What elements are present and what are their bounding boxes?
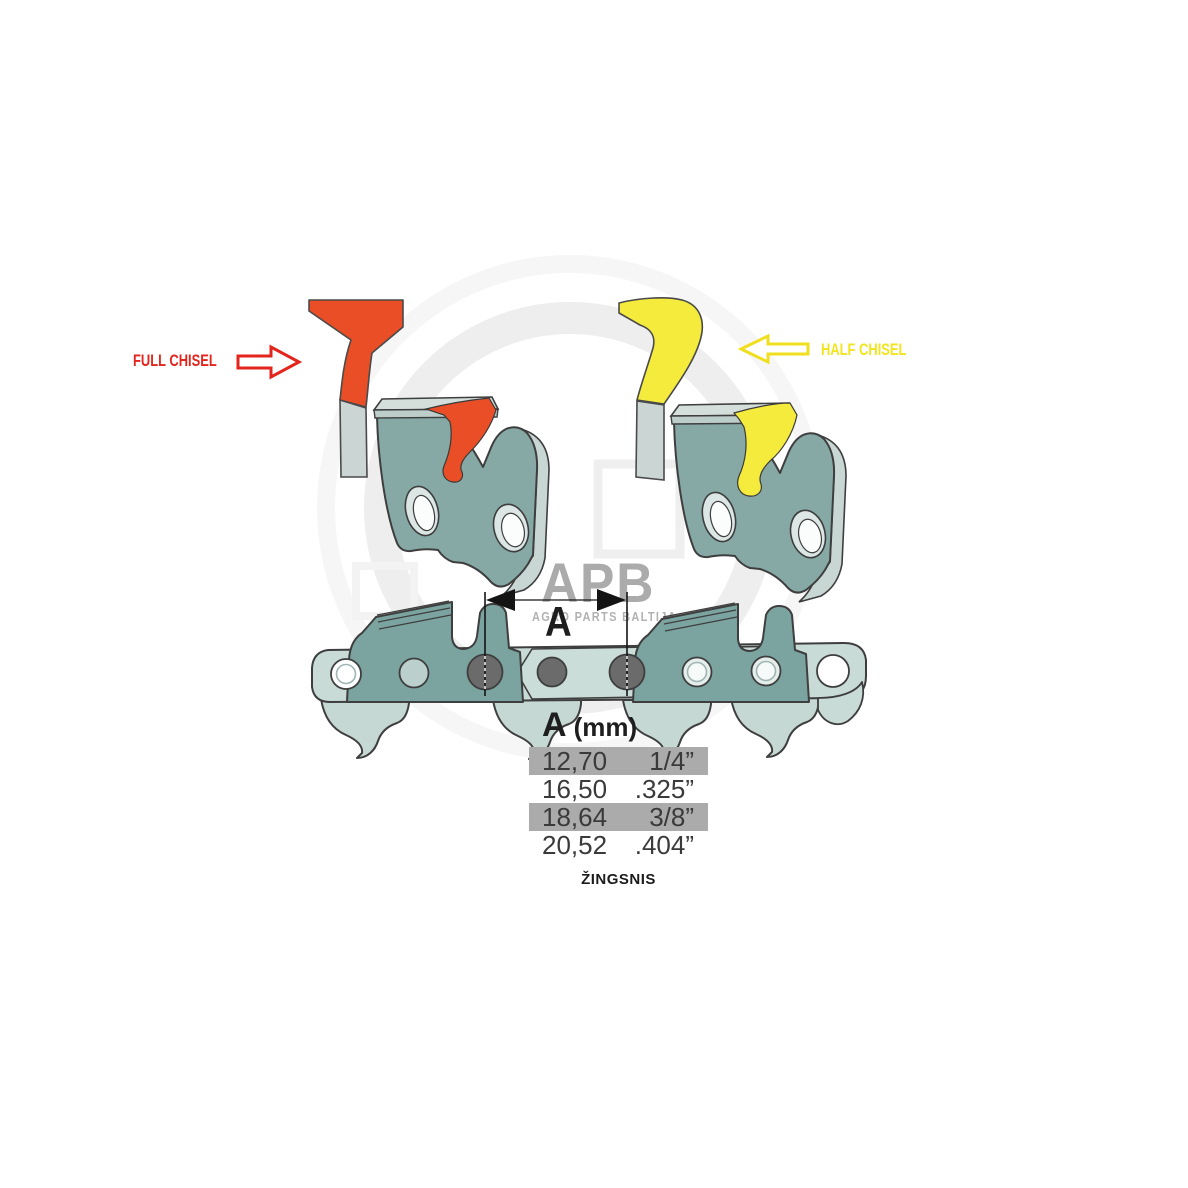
pitch-table-header-letter: A — [542, 708, 567, 742]
diagram-artwork — [0, 0, 1188, 1188]
pitch-table-header-unit: (mm) — [574, 714, 638, 740]
table-row: 16,50 .325” — [529, 775, 708, 803]
pitch-mm: 20,52 — [542, 831, 607, 859]
pitch-mm: 16,50 — [542, 775, 607, 803]
table-row: 20,52 .404” — [529, 831, 708, 859]
table-row: 18,64 3/8” — [529, 803, 708, 831]
pitch-inches: .325” — [635, 775, 694, 803]
right-arrow-icon — [238, 347, 299, 377]
pitch-inches: .404” — [635, 831, 694, 859]
chain-cutter-right — [633, 603, 809, 702]
pitch-table: 12,70 1/4” 16,50 .325” 18,64 3/8” 20,52 … — [529, 747, 708, 859]
full-chisel-label: FULL CHISEL — [133, 351, 217, 371]
pitch-table-header: A (mm) — [542, 708, 637, 742]
pitch-table-caption: ŽINGSNIS — [529, 871, 708, 888]
pitch-inches: 3/8” — [649, 803, 694, 831]
pitch-mm: 12,70 — [542, 747, 607, 775]
pitch-mm: 18,64 — [542, 803, 607, 831]
dimension-arrowhead-right — [597, 589, 626, 611]
pitch-inches: 1/4” — [649, 747, 694, 775]
chainsaw-chain-diagram: APB AGRO PARTS BALTIJA — [0, 0, 1188, 1188]
table-row: 12,70 1/4” — [529, 747, 708, 775]
pitch-dimension-letter: A — [545, 601, 572, 643]
half-chisel-label: HALF CHISEL — [821, 340, 906, 360]
